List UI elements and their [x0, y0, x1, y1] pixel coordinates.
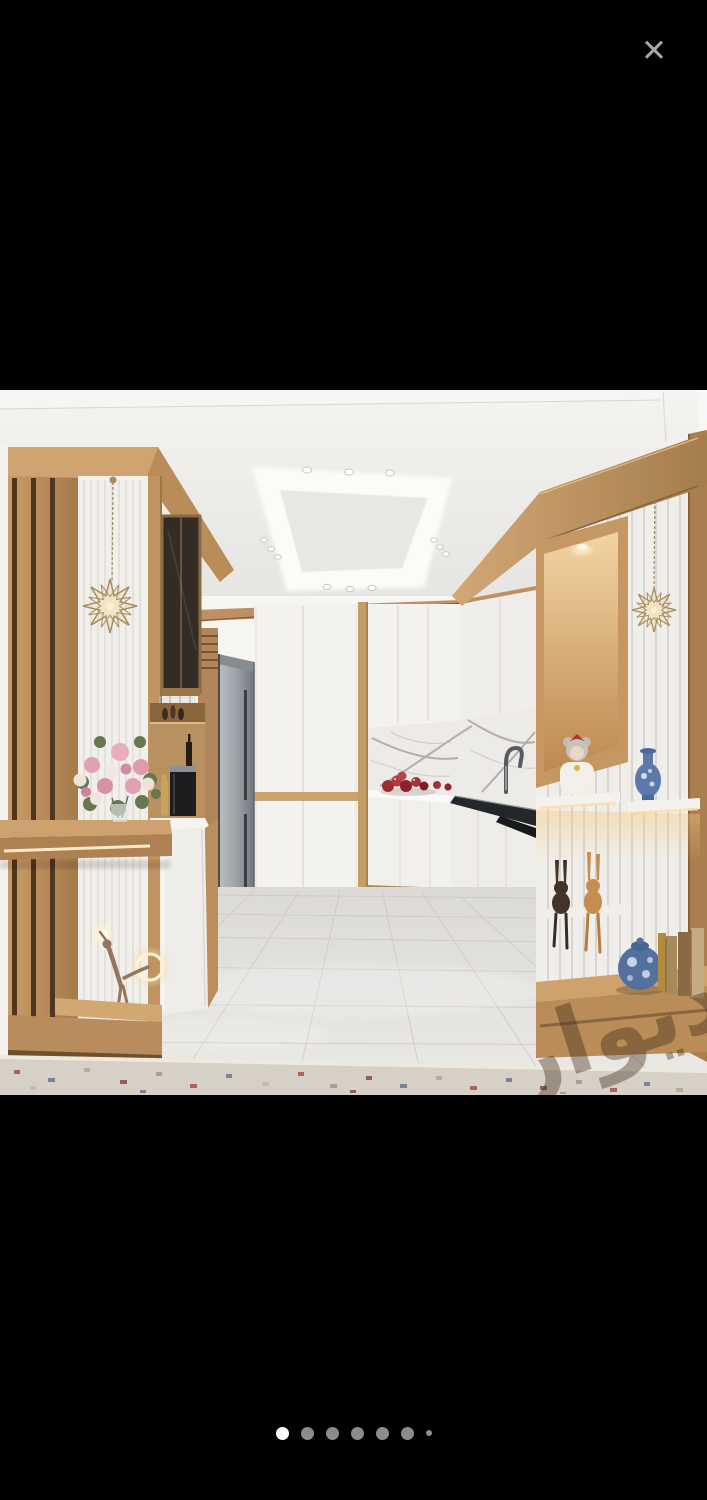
glass-display-cabinet	[162, 516, 200, 696]
close-button[interactable]: ✕	[634, 31, 674, 71]
carousel-dot-1[interactable]	[276, 1427, 289, 1440]
left-partition	[0, 445, 234, 1062]
carousel-dot-4[interactable]	[351, 1427, 364, 1440]
flower-shelf	[0, 820, 172, 869]
gallery-viewer-screen: { "viewer": { "close_icon": "✕", "backgr…	[0, 0, 707, 1500]
carousel-dot-3[interactable]	[326, 1427, 339, 1440]
carousel-dots	[0, 1425, 707, 1441]
carousel-dot-5[interactable]	[376, 1427, 389, 1440]
carousel-dot-7[interactable]	[426, 1430, 432, 1436]
close-icon: ✕	[641, 33, 667, 69]
carousel-dot-6[interactable]	[401, 1427, 414, 1440]
ceiling-cove-light	[252, 467, 452, 591]
carousel-dot-2[interactable]	[301, 1427, 314, 1440]
girl-figurine	[560, 734, 594, 794]
listing-photo[interactable]: دیوار	[0, 390, 707, 1095]
coffee-niche	[150, 703, 210, 830]
